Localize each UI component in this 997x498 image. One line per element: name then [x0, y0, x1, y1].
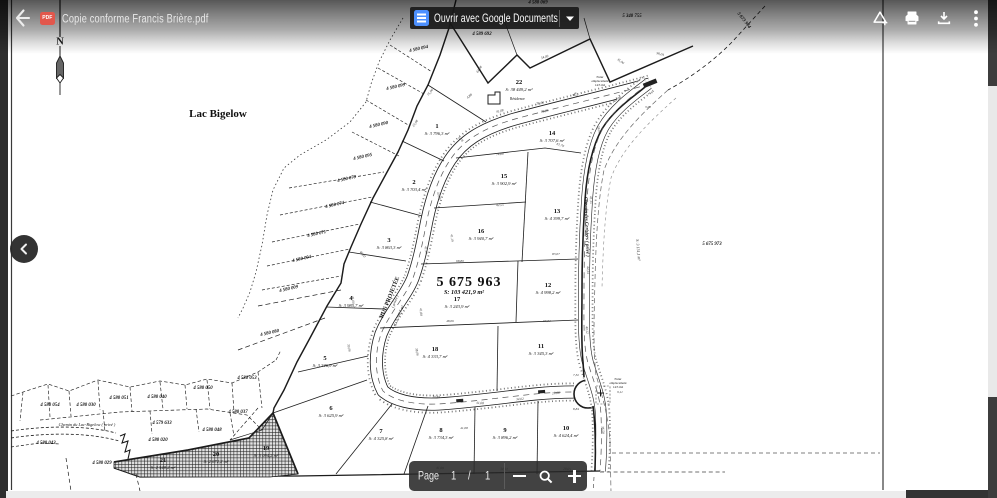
- svg-text:5 675 973: 5 675 973: [702, 242, 722, 247]
- svg-text:S: 3 896,2 m²: S: 3 896,2 m²: [493, 435, 518, 441]
- svg-text:22: 22: [516, 79, 523, 86]
- svg-text:4 580 079: 4 580 079: [336, 175, 357, 185]
- svg-text:21: 21: [160, 457, 167, 464]
- svg-text:S: 3 734,3 m²: S: 3 734,3 m²: [429, 435, 454, 441]
- svg-text:7,32: 7,32: [573, 373, 579, 378]
- svg-text:13: 13: [554, 208, 561, 215]
- svg-text:4 580 048: 4 580 048: [201, 428, 222, 433]
- svg-text:75,06: 75,06: [426, 88, 435, 97]
- svg-text:S: 3 345,3 m²: S: 3 345,3 m²: [529, 351, 554, 357]
- svg-text:4 580 043: 4 580 043: [35, 441, 56, 446]
- svg-text:14/3 m2: 14/3 m2: [613, 385, 624, 389]
- svg-text:41,19: 41,19: [448, 234, 454, 243]
- svg-text:4 580 054: 4 580 054: [39, 403, 60, 408]
- svg-text:16: 16: [478, 228, 485, 235]
- svg-text:68,80: 68,80: [456, 259, 464, 264]
- svg-text:S: 4 325,8 m²: S: 4 325,8 m²: [369, 436, 394, 442]
- svg-text:74,08: 74,08: [496, 152, 504, 158]
- svg-text:65,01: 65,01: [543, 319, 551, 324]
- svg-text:S: 3 625,9 m²: S: 3 625,9 m²: [319, 413, 344, 419]
- svg-text:S: 4 399,7 m²: S: 4 399,7 m²: [545, 216, 570, 222]
- svg-text:4 580 074: 4 580 074: [324, 201, 345, 211]
- svg-text:14: 14: [549, 130, 556, 137]
- svg-text:2: 2: [412, 179, 415, 186]
- svg-text:3,05: 3,05: [645, 105, 651, 110]
- svg-text:4 580 030: 4 580 030: [75, 403, 96, 408]
- svg-text:4,88: 4,88: [466, 93, 474, 101]
- svg-text:19: 19: [263, 445, 270, 452]
- svg-text:5 675 963: 5 675 963: [437, 275, 502, 290]
- svg-text:S: 4 998,2 m²: S: 4 998,2 m²: [536, 290, 561, 296]
- svg-text:41,08: 41,08: [460, 426, 468, 431]
- svg-text:8,84: 8,84: [573, 407, 579, 412]
- svg-text:9,11: 9,11: [617, 390, 623, 395]
- svg-text:11: 11: [538, 343, 544, 350]
- svg-text:4 580 090: 4 580 090: [368, 121, 389, 131]
- svg-text:9: 9: [503, 427, 507, 434]
- svg-text:48,06: 48,06: [446, 319, 454, 324]
- svg-text:4 580 095: 4 580 095: [352, 153, 373, 163]
- svg-text:42,55: 42,55: [496, 203, 504, 209]
- svg-text:5: 5: [323, 355, 327, 362]
- svg-text:S: 4 624,4 m²: S: 4 624,4 m²: [554, 433, 579, 439]
- svg-text:4 580 020: 4 580 020: [147, 438, 168, 443]
- svg-text:S: 3 940,7 m²: S: 3 940,7 m²: [469, 236, 494, 242]
- svg-text:4 579 633: 4 579 633: [151, 421, 172, 426]
- svg-text:4 580 053: 4 580 053: [236, 376, 257, 381]
- svg-text:10: 10: [563, 425, 570, 432]
- svg-text:S: 3 796,3 m²: S: 3 796,3 m²: [425, 131, 450, 137]
- svg-text:Chemin du Lac-Bigelow ( privé: Chemin du Lac-Bigelow ( privé ): [59, 422, 116, 427]
- svg-text:12: 12: [545, 282, 552, 289]
- svg-text:4 580 099: 4 580 099: [385, 83, 406, 93]
- svg-text:4 580 029: 4 580 029: [91, 461, 112, 466]
- svg-text:4 580 040: 4 580 040: [146, 395, 167, 400]
- svg-text:4 580 051: 4 580 051: [108, 396, 128, 401]
- svg-text:6: 6: [329, 405, 333, 412]
- svg-text:4 580 080: 4 580 080: [259, 329, 280, 339]
- svg-text:8: 8: [439, 427, 443, 434]
- svg-text:40,02: 40,02: [358, 250, 367, 259]
- svg-text:20: 20: [213, 451, 220, 458]
- svg-text:38,06: 38,06: [413, 348, 419, 357]
- svg-text:41,00: 41,00: [418, 308, 423, 316]
- svg-text:83,07: 83,07: [552, 252, 560, 257]
- svg-text:39,06: 39,06: [345, 344, 351, 353]
- svg-text:18: 18: [432, 346, 439, 353]
- svg-text:Résidence: Résidence: [510, 97, 525, 101]
- svg-text:35,06: 35,06: [616, 57, 625, 66]
- svg-text:S: 103 421,9 m²: S: 103 421,9 m²: [444, 289, 484, 296]
- svg-text:17: 17: [454, 296, 461, 303]
- svg-text:15: 15: [501, 173, 508, 180]
- svg-text:S: 3 703,4 m²: S: 3 703,4 m²: [402, 187, 427, 193]
- svg-text:4 580 004: 4 580 004: [291, 255, 312, 265]
- svg-text:14/3 m2: 14/3 m2: [595, 83, 606, 87]
- svg-text:1: 1: [435, 123, 438, 130]
- svg-text:S: 38 449,2 m²: S: 38 449,2 m²: [506, 87, 534, 93]
- svg-text:S: 3 131,1 m²: S: 3 131,1 m²: [634, 239, 642, 262]
- svg-text:S: 4 333,7 m²: S: 4 333,7 m²: [423, 354, 448, 360]
- svg-text:4 580 050: 4 580 050: [192, 386, 213, 391]
- svg-text:4 580 071: 4 580 071: [306, 230, 327, 239]
- svg-text:3: 3: [387, 237, 391, 244]
- svg-text:4 580 037: 4 580 037: [227, 410, 248, 415]
- svg-text:Lac Bigelow: Lac Bigelow: [189, 108, 247, 120]
- svg-text:S: 3 243,9 m²: S: 3 243,9 m²: [445, 304, 470, 310]
- svg-text:23,08: 23,08: [411, 119, 420, 128]
- svg-text:S: 3 902,9 m²: S: 3 902,9 m²: [492, 181, 517, 187]
- svg-text:4 580 009: 4 580 009: [278, 285, 299, 295]
- svg-text:S: 3 863,3 m²: S: 3 863,3 m²: [377, 245, 402, 251]
- svg-text:7: 7: [379, 428, 383, 435]
